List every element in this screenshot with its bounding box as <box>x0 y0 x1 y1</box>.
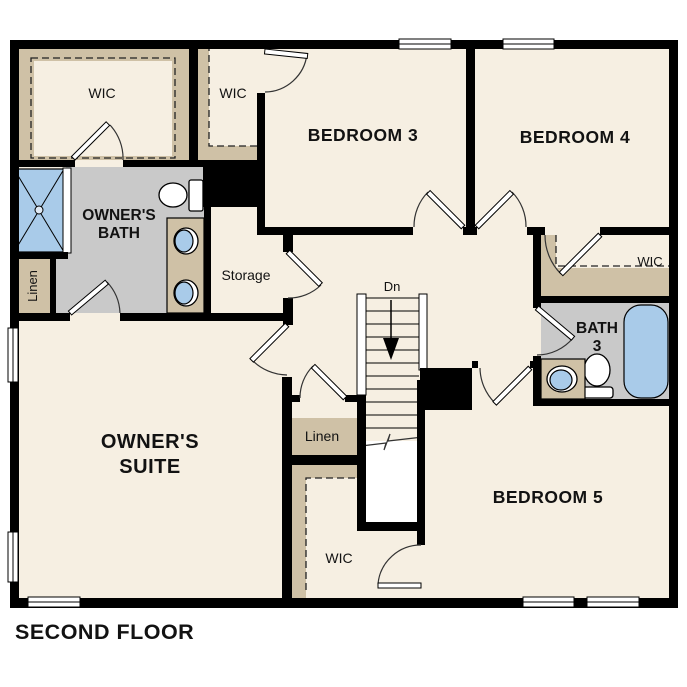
shower-icon <box>14 168 71 253</box>
window <box>8 532 18 582</box>
window <box>399 39 451 49</box>
window <box>503 39 554 49</box>
sink-icon <box>547 366 577 392</box>
floor-plan-drawing: WIC WIC BEDROOM 3 BEDROOM 4 OWNER'S BATH… <box>0 0 687 687</box>
toilet-icon <box>581 354 613 398</box>
label-bedroom4-wic: WIC <box>637 254 662 269</box>
window <box>587 597 639 607</box>
stair-rail <box>357 294 366 395</box>
label-bedroom4: BEDROOM 4 <box>520 127 630 147</box>
label-bedroom3-wic: WIC <box>219 85 246 101</box>
label-owners-wic: WIC <box>88 85 115 101</box>
label-owners-bath-2: BATH <box>98 225 140 242</box>
shower-drain <box>35 206 43 214</box>
label-bath3-1: BATH <box>576 320 618 337</box>
double-vanity <box>167 218 204 313</box>
label-owners-suite-2: SUITE <box>119 456 180 478</box>
label-bedroom5: BEDROOM 5 <box>493 487 603 507</box>
floor-plan-page: WIC WIC BEDROOM 3 BEDROOM 4 OWNER'S BATH… <box>0 0 687 687</box>
bathroom-3 <box>541 303 678 399</box>
label-bath-linen: Linen <box>25 270 40 302</box>
label-bath3-2: 3 <box>593 338 602 355</box>
vanity-sink <box>541 359 585 399</box>
plan-title: SECOND FLOOR <box>15 620 194 644</box>
stair-rail <box>419 294 427 370</box>
window <box>28 597 80 607</box>
label-bedroom5-wic: WIC <box>325 550 352 566</box>
room-owners-wic <box>19 49 189 160</box>
stair-landing <box>366 441 417 522</box>
sink-icon <box>174 228 198 254</box>
window <box>523 597 574 607</box>
label-stairs-down: Dn <box>384 279 401 294</box>
label-bedroom3: BEDROOM 3 <box>308 125 418 145</box>
window <box>8 328 18 382</box>
shower-glass <box>63 168 71 253</box>
label-storage: Storage <box>221 267 270 283</box>
label-hall-linen: Linen <box>305 428 339 444</box>
bathtub-icon <box>624 305 668 398</box>
room-bedroom3-wic <box>198 49 257 160</box>
label-owners-bath-1: OWNER'S <box>82 207 155 224</box>
sink-icon <box>174 280 198 306</box>
label-owners-suite-1: OWNER'S <box>101 431 199 453</box>
